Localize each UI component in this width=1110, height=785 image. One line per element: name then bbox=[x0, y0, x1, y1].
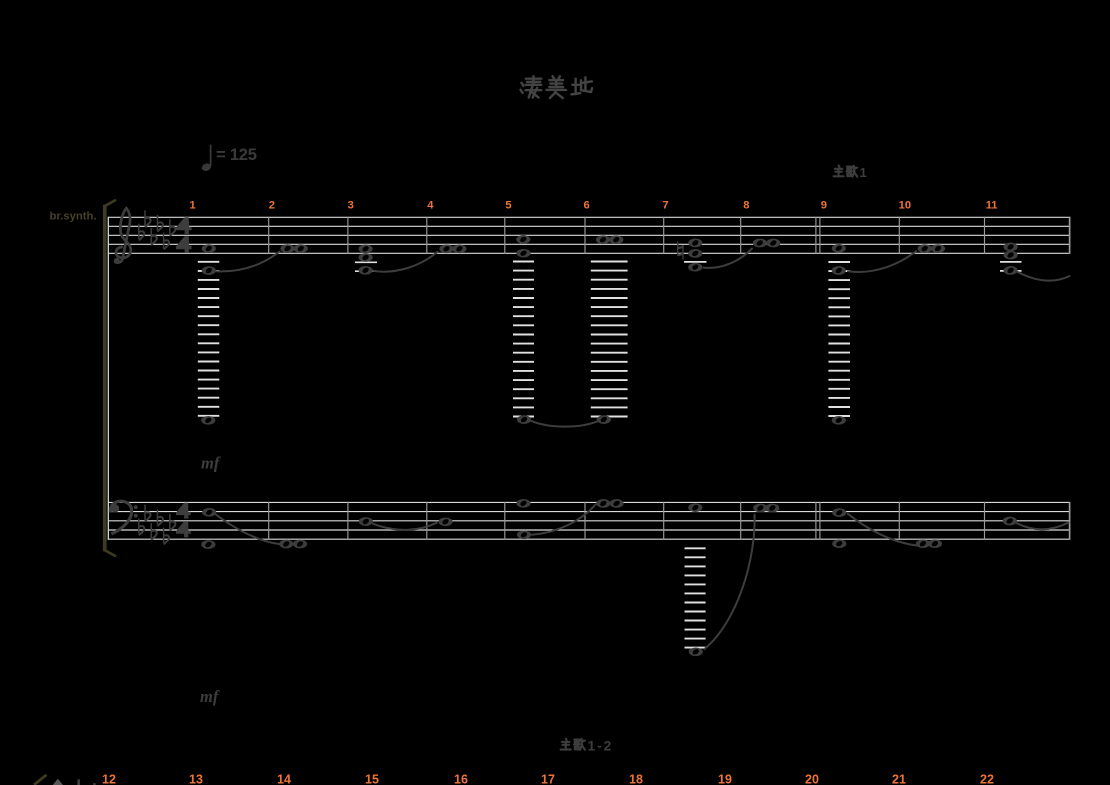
svg-text:6: 6 bbox=[584, 200, 590, 212]
svg-text:18: 18 bbox=[629, 772, 643, 785]
svg-text:4: 4 bbox=[427, 200, 434, 212]
svg-text:17: 17 bbox=[541, 772, 555, 785]
svg-text:13: 13 bbox=[189, 772, 203, 785]
svg-text:2: 2 bbox=[269, 200, 275, 212]
svg-text:12: 12 bbox=[102, 772, 116, 785]
svg-text:14: 14 bbox=[277, 772, 291, 785]
svg-text:10: 10 bbox=[899, 200, 911, 212]
svg-text:1: 1 bbox=[190, 200, 196, 212]
svg-text:15: 15 bbox=[365, 772, 379, 785]
svg-text:11: 11 bbox=[986, 200, 998, 212]
svg-text:br.synth.: br.synth. bbox=[50, 211, 97, 223]
svg-text:mf: mf bbox=[200, 687, 220, 706]
svg-text:3: 3 bbox=[348, 200, 354, 212]
svg-text:20: 20 bbox=[805, 772, 819, 785]
svg-text:1-2: 1-2 bbox=[588, 738, 614, 753]
svg-text:8: 8 bbox=[743, 200, 749, 212]
svg-text:19: 19 bbox=[718, 772, 732, 785]
svg-text:mf: mf bbox=[201, 454, 221, 473]
svg-text:9: 9 bbox=[821, 200, 827, 212]
svg-text:1: 1 bbox=[860, 165, 867, 180]
svg-text:22: 22 bbox=[980, 772, 994, 785]
svg-text:16: 16 bbox=[454, 772, 468, 785]
svg-text:21: 21 bbox=[892, 772, 906, 785]
svg-text:7: 7 bbox=[662, 200, 668, 212]
svg-text:= 125: = 125 bbox=[216, 146, 257, 164]
svg-text:5: 5 bbox=[505, 200, 511, 212]
